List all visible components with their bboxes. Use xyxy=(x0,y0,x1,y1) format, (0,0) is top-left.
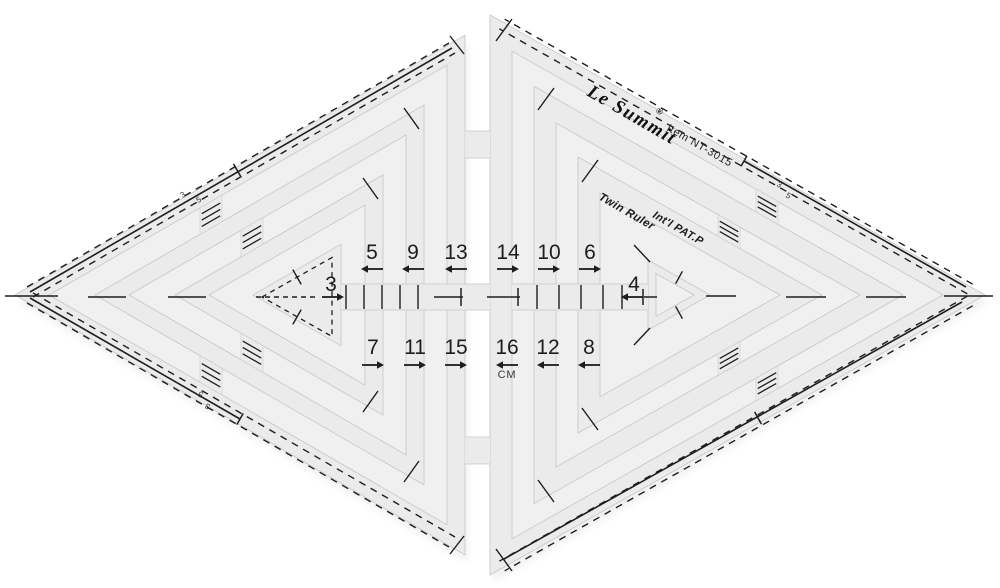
measure-number-6: 6 xyxy=(584,241,596,264)
measure-number-5: 5 xyxy=(366,241,378,264)
unit-label: CM xyxy=(498,369,517,381)
twin-ruler-product-photo: 591314106711151612834CM353553 Le Summit … xyxy=(0,0,1000,588)
top-connector xyxy=(465,131,490,158)
measure-number-10: 10 xyxy=(537,241,560,264)
center-connector xyxy=(465,284,490,310)
measure-number-8: 8 xyxy=(583,336,595,359)
measure-number-14: 14 xyxy=(496,241,520,264)
measure-number-15: 15 xyxy=(444,336,467,359)
measure-number-16: 16 xyxy=(495,336,518,359)
measure-number-7: 7 xyxy=(367,336,379,359)
measure-number-4: 4 xyxy=(628,273,640,296)
measure-number-3: 3 xyxy=(325,273,337,296)
twin-ruler-image: 591314106711151612834CM353553 Le Summit … xyxy=(0,0,1000,588)
measure-number-9: 9 xyxy=(407,241,419,264)
bottom-connector xyxy=(465,437,490,464)
measure-number-11: 11 xyxy=(404,336,426,359)
measure-number-12: 12 xyxy=(536,336,559,359)
measure-number-13: 13 xyxy=(444,241,467,264)
